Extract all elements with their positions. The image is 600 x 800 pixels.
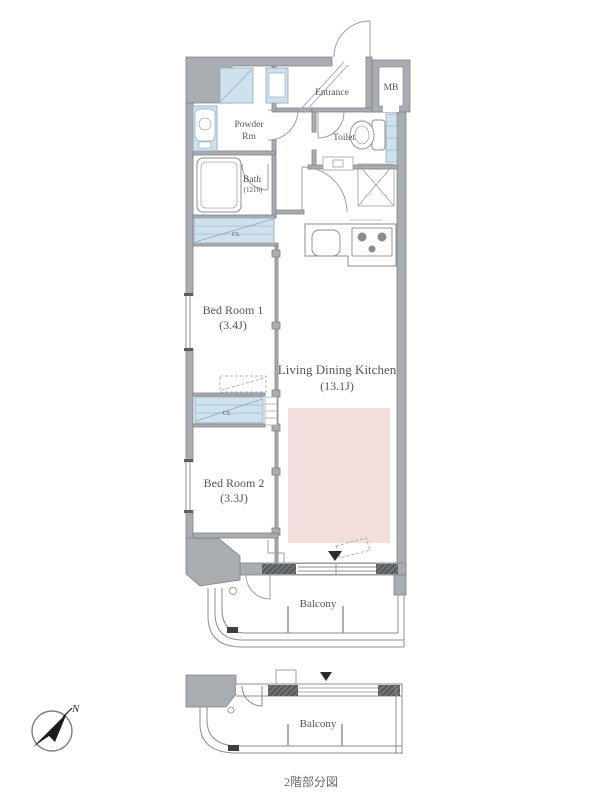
wall-closet2-top [193,393,265,396]
meter-box-label: MB [384,83,399,93]
partial-wall-block [186,675,236,707]
wall-nub-5 [272,468,280,475]
wall-nub-3 [272,390,280,397]
closet2-ladder [265,397,277,425]
floor-plan-canvas: MB [0,0,600,800]
wall-bath-bottom [193,215,275,218]
wall-bedroom2-bottom [193,533,278,538]
partial-hatch-mark [228,745,239,751]
wall-powder-bath [193,151,275,155]
washer-space [220,68,253,103]
toilet-label: Toilet [333,133,355,143]
bedroom2-label-1: Bed Room 2 [204,476,265,490]
entry-cabinet [266,68,288,103]
washbasin [193,106,217,151]
ldk-label-2: (13.1J) [320,379,354,393]
main-balcony-label: Balcony [300,598,337,610]
bedroom1-window [184,293,193,351]
bedroom1-label-1: Bed Room 1 [203,303,264,317]
ldk-label-1: Living Dining Kitchen [278,362,397,377]
toilet-cabinet [386,114,397,162]
background [0,0,600,800]
closet-2: CL [195,397,263,423]
wall-entrance-right [366,57,372,112]
bathtub [197,158,241,212]
wall-left-middle [186,348,193,462]
closet-1: CL [194,218,274,243]
closet1-label: CL [232,231,240,238]
bedroom1-label-2: (3.4J) [219,318,247,332]
plan-caption: 2階部分図 [284,774,338,789]
hall-counter-box [323,157,353,170]
partial-hatched-b [378,685,400,696]
powder-label-1: Powder [234,120,264,130]
partial-balcony-label: Balcony [300,718,337,730]
toilet-fixture [350,120,385,150]
north-label: N [71,703,80,715]
closet2-label: CL [223,410,231,417]
wall-toilet-left-b [312,150,316,165]
floor-plan-page: MB [0,0,600,800]
wall-left-lower [186,510,193,540]
bath-label-2: (1216) [244,186,263,194]
powder-label-2: Rm [242,132,256,142]
wall-hall-bottom [276,210,304,214]
wall-toilet-left-a [312,112,316,132]
hatched-wall-b [376,564,398,574]
wall-nub-1 [272,250,280,257]
wall-right [397,108,406,575]
entrance-label: Entrance [315,88,349,98]
wall-closet1-bottom [193,243,278,246]
rug-area [288,408,390,561]
wall-balcony-stub [394,575,406,595]
balcony-hatch-mark [227,627,238,633]
meter-box: MB [372,60,410,112]
wall-left-upper [186,103,193,296]
hatched-wall-a [262,564,296,574]
bath-label-1: Bath [243,175,261,185]
bottom-openings [262,564,398,574]
bedroom2-label-2: (3.3J) [220,491,248,505]
partial-hatched-a [268,685,298,696]
bedroom2-window [184,459,193,513]
wall-nub-2 [272,322,280,329]
wall-closet2-bottom [193,424,265,427]
